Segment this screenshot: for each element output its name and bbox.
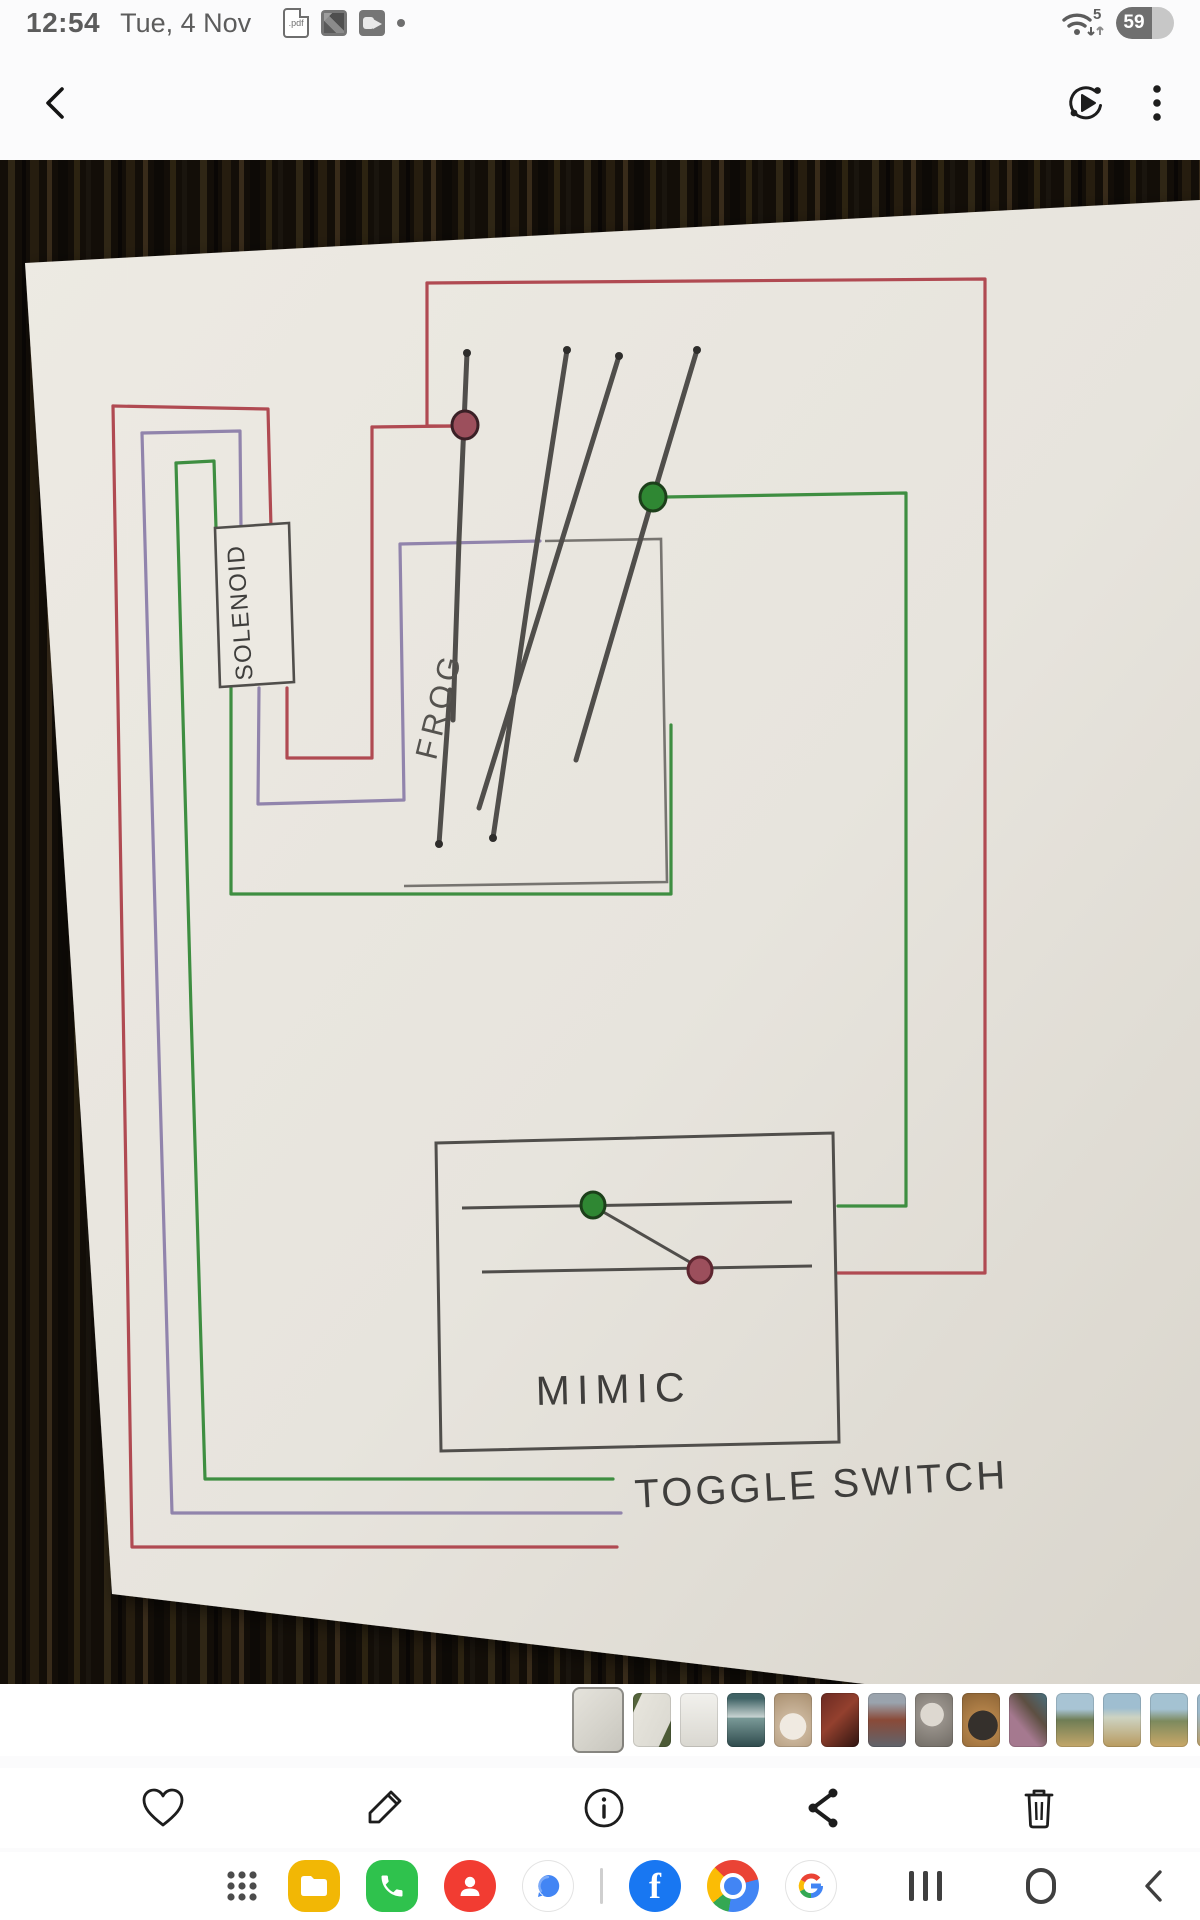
thumb-rv-field-3[interactable] xyxy=(1150,1693,1188,1747)
home-button[interactable] xyxy=(1026,1868,1056,1904)
trash-icon xyxy=(1018,1785,1060,1831)
status-date: Tue, 4 Nov xyxy=(120,8,251,39)
thumb-document[interactable] xyxy=(680,1693,718,1747)
folder-icon xyxy=(299,1873,329,1899)
info-icon xyxy=(581,1785,627,1831)
screen: 12:54 Tue, 4 Nov .pdf 5 59 xyxy=(0,0,1200,1920)
google-g-icon xyxy=(794,1869,828,1903)
messages-app-button[interactable] xyxy=(522,1860,574,1912)
thumb-current-diagram[interactable] xyxy=(572,1687,624,1753)
thumb-puppy-floor[interactable] xyxy=(915,1693,953,1747)
thumb-white-dog[interactable] xyxy=(774,1693,812,1747)
track-red-led xyxy=(452,411,478,439)
motion-photo-icon xyxy=(1062,79,1110,127)
share-icon xyxy=(803,1785,843,1831)
nav-back-icon xyxy=(1140,1868,1166,1904)
more-options-button[interactable] xyxy=(1150,79,1164,127)
paper-sheet xyxy=(25,200,1200,1688)
battery-percent: 59 xyxy=(1123,12,1144,34)
phone-icon xyxy=(378,1872,406,1900)
more-notifications-dot xyxy=(397,19,405,27)
wifi-icon: 5 xyxy=(1060,5,1104,41)
delete-button[interactable] xyxy=(1018,1785,1060,1831)
person-icon xyxy=(456,1872,484,1900)
status-bar: 12:54 Tue, 4 Nov .pdf 5 59 xyxy=(0,0,1200,46)
app-bar xyxy=(0,46,1200,160)
more-vertical-icon xyxy=(1150,79,1164,127)
google-app-button[interactable] xyxy=(785,1860,837,1912)
thumb-black-dog[interactable] xyxy=(962,1693,1000,1747)
contacts-app-button[interactable] xyxy=(444,1860,496,1912)
chat-bubble-icon xyxy=(533,1871,563,1901)
thumb-model-train[interactable] xyxy=(868,1693,906,1747)
chrome-app-button[interactable] xyxy=(707,1860,759,1912)
details-button[interactable] xyxy=(581,1785,627,1831)
apps-grid-button[interactable] xyxy=(222,1866,262,1906)
nav-back-button[interactable] xyxy=(1140,1868,1166,1904)
track-green-led xyxy=(640,483,666,511)
image-notification-icon xyxy=(321,10,347,36)
thumb-phone-screenshot[interactable] xyxy=(727,1693,765,1747)
solenoid-box: SOLENOID xyxy=(215,523,294,687)
pencil-icon xyxy=(362,1786,406,1830)
svg-text:5: 5 xyxy=(1093,6,1101,23)
thumb-cat-blanket[interactable] xyxy=(1009,1693,1047,1747)
mimic-green-led xyxy=(581,1192,605,1218)
facebook-icon: f xyxy=(649,1865,661,1907)
phone-app-button[interactable] xyxy=(366,1860,418,1912)
home-icon xyxy=(1026,1868,1056,1904)
apps-grid-icon xyxy=(222,1866,262,1906)
thumb-rv-field-1[interactable] xyxy=(1056,1693,1094,1747)
clock: 12:54 xyxy=(26,7,100,39)
thumb-diagram-on-grass[interactable] xyxy=(633,1693,671,1747)
mimic-label: MIMIC xyxy=(535,1364,692,1414)
outlook-notification-icon xyxy=(359,10,385,36)
dock-divider xyxy=(600,1868,603,1904)
thumb-red-machine[interactable] xyxy=(821,1693,859,1747)
heart-icon xyxy=(140,1786,186,1830)
edit-button[interactable] xyxy=(362,1786,406,1830)
wiring-diagram-photo: SOLENOID FROG MIMIC TOGGLE SWITCH xyxy=(0,160,1200,1688)
files-app-button[interactable] xyxy=(288,1860,340,1912)
back-chevron-icon xyxy=(36,81,76,125)
bottom-toolbar xyxy=(0,1768,1200,1848)
photo-viewer[interactable]: SOLENOID FROG MIMIC TOGGLE SWITCH xyxy=(0,160,1200,1688)
dock-bar: f xyxy=(0,1852,1200,1920)
favorite-button[interactable] xyxy=(140,1786,186,1830)
recents-button[interactable] xyxy=(909,1871,942,1901)
mimic-red-led xyxy=(688,1257,712,1283)
facebook-app-button[interactable]: f xyxy=(629,1860,681,1912)
battery-indicator: 59 xyxy=(1116,7,1174,39)
back-button[interactable] xyxy=(36,81,76,125)
pdf-notification-icon: .pdf xyxy=(283,8,309,38)
thumb-rv-field-2[interactable] xyxy=(1103,1693,1141,1747)
share-button[interactable] xyxy=(803,1785,843,1831)
motion-photo-button[interactable] xyxy=(1062,79,1110,127)
thumbnail-strip[interactable] xyxy=(0,1684,1200,1756)
